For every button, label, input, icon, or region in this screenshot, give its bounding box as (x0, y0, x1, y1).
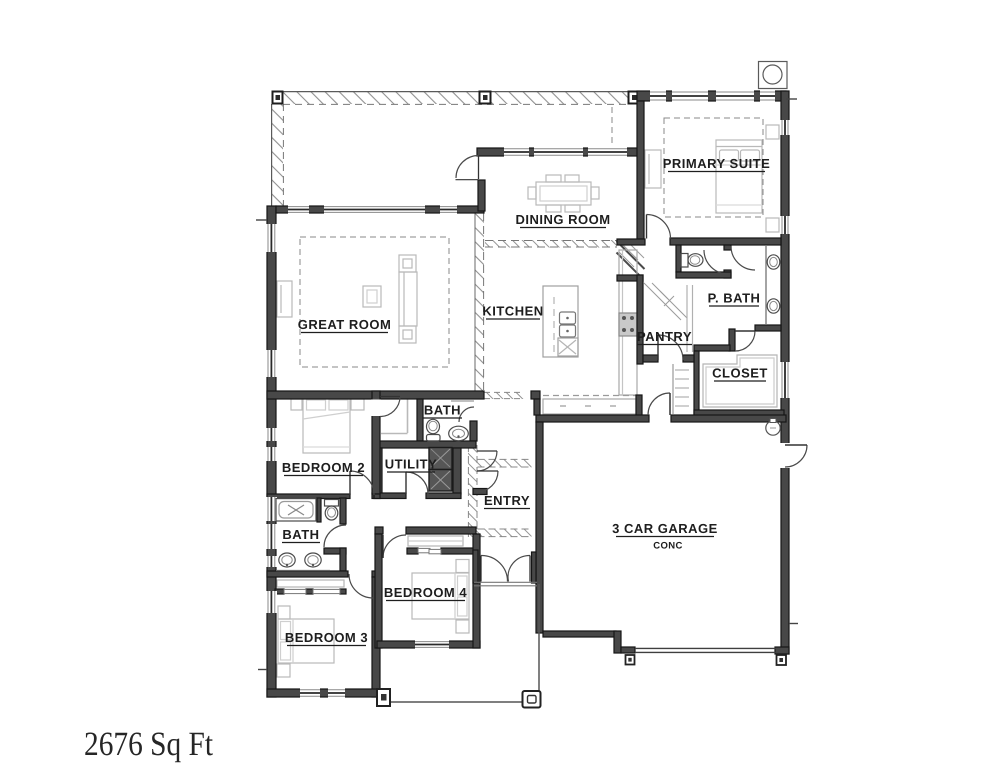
svg-text:BEDROOM 2: BEDROOM 2 (282, 460, 365, 475)
svg-text:PANTRY: PANTRY (637, 329, 692, 344)
svg-text:GREAT ROOM: GREAT ROOM (298, 317, 392, 332)
svg-text:ENTRY: ENTRY (484, 493, 530, 508)
svg-text:BATH: BATH (424, 403, 461, 418)
svg-text:2676 Sq Ft: 2676 Sq Ft (84, 726, 213, 763)
svg-text:BEDROOM 3: BEDROOM 3 (285, 630, 368, 645)
svg-text:CONC: CONC (653, 541, 683, 552)
svg-text:BATH: BATH (282, 527, 319, 542)
svg-text:PRIMARY SUITE: PRIMARY SUITE (663, 156, 771, 171)
svg-text:DINING ROOM: DINING ROOM (515, 212, 610, 227)
svg-text:P. BATH: P. BATH (708, 291, 761, 306)
svg-text:KITCHEN: KITCHEN (482, 304, 543, 319)
svg-text:3 CAR GARAGE: 3 CAR GARAGE (612, 521, 718, 536)
svg-text:CLOSET: CLOSET (712, 366, 768, 381)
svg-text:UTILITY: UTILITY (385, 457, 438, 472)
svg-text:BEDROOM 4: BEDROOM 4 (384, 585, 468, 600)
